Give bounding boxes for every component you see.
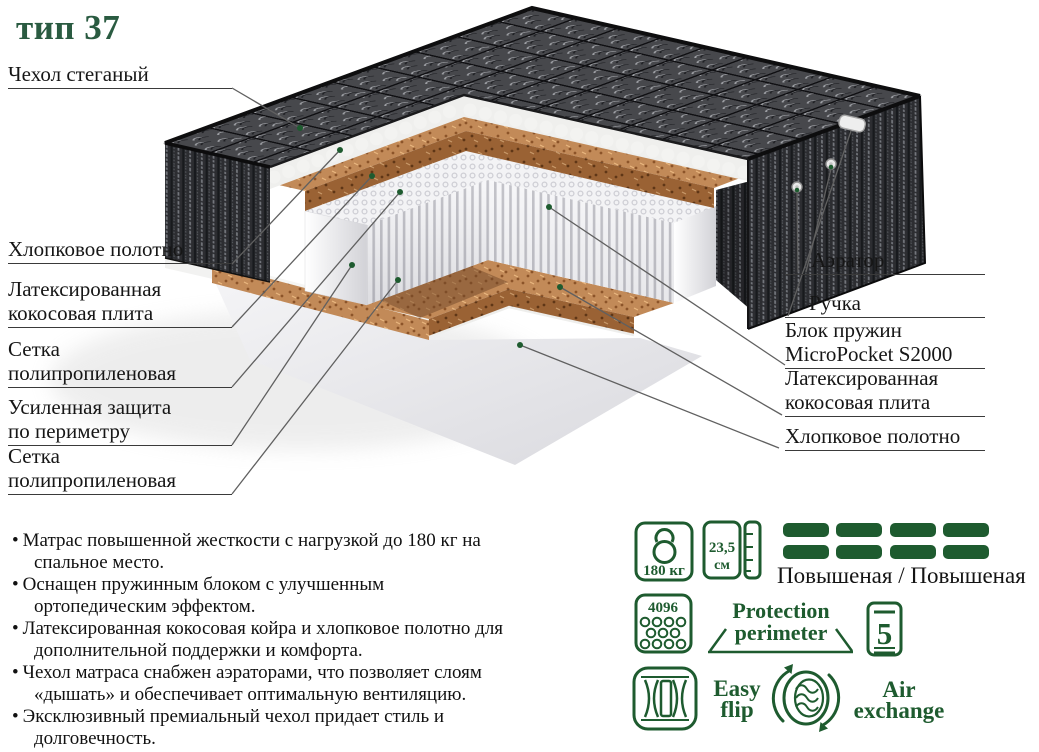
label-aerator: Аэратор [785, 248, 985, 275]
protection-word-2: perimeter [735, 620, 828, 645]
label-pp-net-top: Сетка полипропиленовая [8, 337, 232, 388]
label-text: Латексированная кокосовая плита [8, 277, 194, 325]
firmness-label: Повышеная / Повышеная [777, 563, 1026, 589]
page-root: 180 кг 23,5 см 4096 Protection perimeter [0, 0, 1039, 752]
easy-flip-icon [634, 668, 696, 729]
label-cotton-fabric-right: Хлопковое полотно [785, 424, 985, 451]
badge-weight-value: 180 кг [643, 563, 685, 579]
firmness-bars [783, 523, 989, 559]
badge-height-unit: см [714, 558, 730, 573]
badge-zones: 5 [868, 603, 901, 655]
badge-protection: Protection perimeter [708, 598, 853, 652]
foam-perimeter-right [674, 206, 716, 303]
list-item: Оснащен пружинным блоком с улучшенным ор… [6, 574, 518, 618]
badge-height-value: 23,5 [709, 540, 735, 556]
label-quilted-cover: Чехол стеганый [8, 62, 232, 89]
label-text: Чехол стеганый [8, 62, 194, 86]
label-text: Хлопковое полотно [785, 424, 971, 448]
label-text: Усиленная защита по периметру [8, 395, 194, 443]
label-handle: Ручка [785, 291, 985, 318]
label-text: Латексированная кокосовая плита [785, 366, 971, 414]
list-item: Эксклюзивный премиальный чехол придает с… [6, 706, 518, 750]
label-text: Сетка полипропиленовая [8, 444, 194, 492]
air-exchange-icon [773, 664, 838, 732]
air-word-2: exchange [854, 698, 945, 723]
label-text: Блок пружин MicroPocket S2000 [785, 318, 971, 366]
label-text: Хлопковое полотно [8, 237, 194, 261]
label-pp-net-bottom: Сетка полипропиленовая [8, 444, 232, 495]
label-text: Аэратор [785, 248, 985, 272]
badge-springs-count: 4096 [648, 600, 679, 616]
description-list: Матрас повышенной жесткости с нагрузкой … [6, 530, 518, 750]
label-text: Сетка полипропиленовая [8, 337, 194, 385]
label-text: Ручка [785, 291, 985, 315]
label-spring-block: Блок пружин MicroPocket S2000 [785, 318, 985, 369]
label-latex-coir-right: Латексированная кокосовая плита [785, 366, 985, 417]
list-item: Латексированная кокосовая койра и хлопко… [6, 618, 518, 662]
label-latex-coir-left: Латексированная кокосовая плита [8, 277, 232, 328]
easy-flip-word-2: flip [720, 697, 753, 722]
list-item: Чехол матраса снабжен аэраторами, что по… [6, 662, 518, 706]
label-perimeter-protection: Усиленная защита по периметру [8, 395, 232, 446]
page-title: тип 37 [16, 8, 120, 48]
list-item: Матрас повышенной жесткости с нагрузкой … [6, 530, 518, 574]
zones-value: 5 [877, 616, 893, 651]
label-cotton-fabric-left: Хлопковое полотно [8, 237, 232, 264]
